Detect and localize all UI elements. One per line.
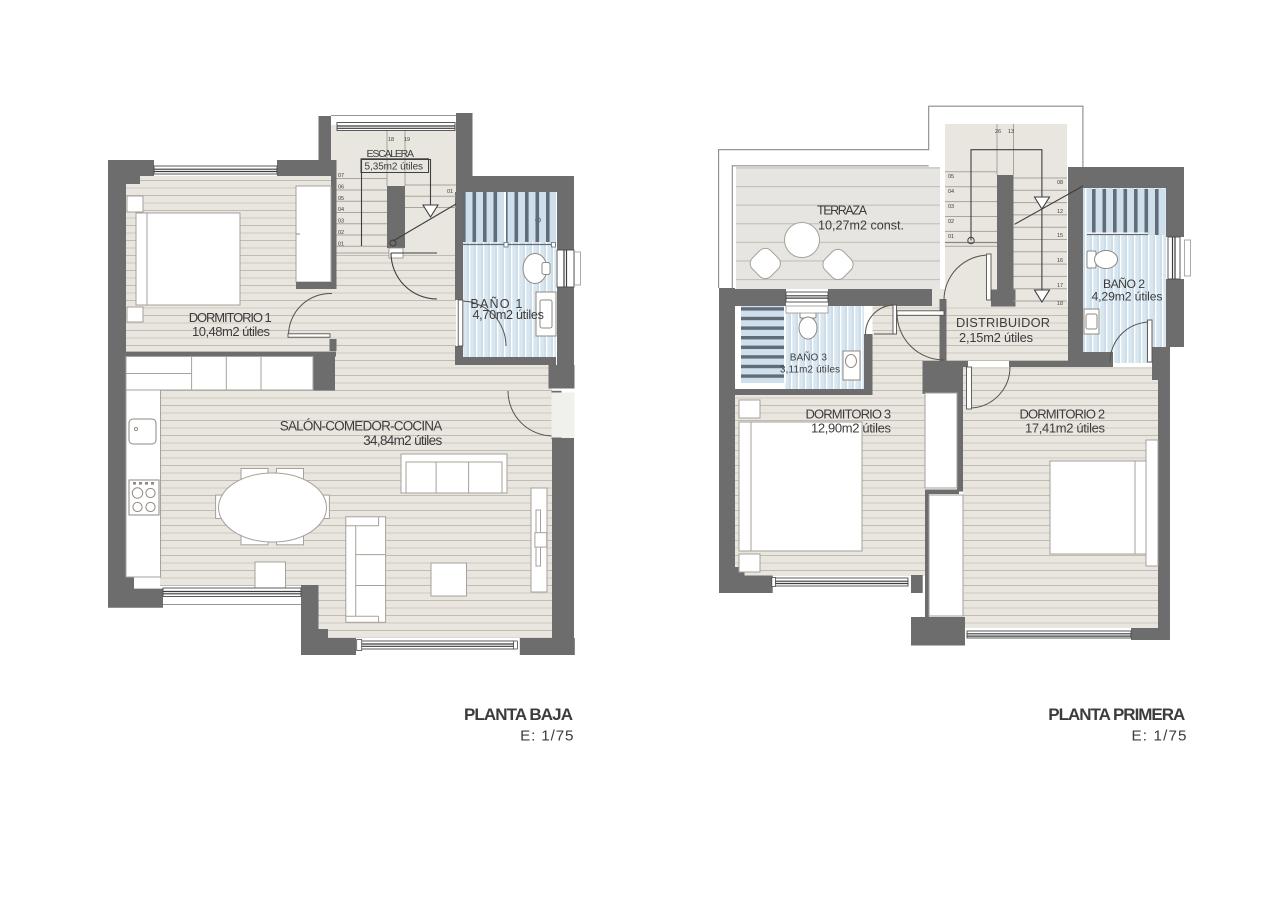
svg-text:13: 13 — [1008, 129, 1014, 135]
svg-text:10,27m2 const.: 10,27m2 const. — [818, 219, 904, 233]
svg-text:01: 01 — [948, 234, 954, 240]
svg-text:18: 18 — [1057, 301, 1063, 307]
svg-text:16: 16 — [1057, 258, 1063, 264]
svg-text:34,84m2 útiles: 34,84m2 útiles — [363, 433, 442, 448]
svg-text:18: 18 — [388, 137, 394, 143]
svg-text:4,70m2 útiles: 4,70m2 útiles — [472, 308, 544, 322]
svg-text:04: 04 — [338, 207, 344, 213]
svg-text:08: 08 — [1057, 180, 1063, 186]
svg-text:E: 1/75: E: 1/75 — [520, 728, 573, 745]
svg-text:12,90m2 útiles: 12,90m2 útiles — [811, 420, 892, 435]
svg-text:ESCALERA: ESCALERA — [367, 148, 415, 160]
svg-text:15: 15 — [1057, 233, 1063, 239]
svg-text:26: 26 — [995, 129, 1001, 135]
svg-text:5,35m2 útiles: 5,35m2 útiles — [365, 162, 424, 173]
svg-text:4,29m2 útiles: 4,29m2 útiles — [1092, 290, 1163, 304]
svg-text:BAÑO 3: BAÑO 3 — [790, 353, 828, 364]
svg-text:02: 02 — [338, 230, 344, 236]
svg-text:10,48m2 útiles: 10,48m2 útiles — [192, 324, 271, 339]
svg-text:17: 17 — [1057, 283, 1063, 289]
svg-text:2,15m2 útiles: 2,15m2 útiles — [959, 330, 1033, 345]
svg-text:DISTRIBUIDOR: DISTRIBUIDOR — [956, 315, 1050, 330]
svg-text:DORMITORIO 1: DORMITORIO 1 — [189, 310, 272, 325]
svg-text:SALÓN-COMEDOR-COCINA: SALÓN-COMEDOR-COCINA — [280, 419, 443, 434]
svg-text:03: 03 — [338, 219, 344, 225]
svg-text:3,11m2 útiles: 3,11m2 útiles — [780, 365, 840, 376]
svg-text:19: 19 — [404, 137, 410, 143]
svg-text:07: 07 — [338, 173, 344, 179]
svg-text:DORMITORIO 3: DORMITORIO 3 — [806, 406, 892, 421]
svg-text:PLANTA PRIMERA: PLANTA PRIMERA — [1048, 705, 1185, 724]
svg-text:DORMITORIO 2: DORMITORIO 2 — [1020, 406, 1106, 421]
svg-text:06: 06 — [338, 185, 344, 191]
svg-text:E: 1/75: E: 1/75 — [1132, 728, 1187, 745]
svg-text:05: 05 — [948, 174, 954, 180]
svg-text:04: 04 — [948, 189, 954, 195]
svg-text:12: 12 — [1057, 209, 1063, 215]
svg-text:05: 05 — [338, 196, 344, 202]
svg-text:17,41m2 útiles: 17,41m2 útiles — [1025, 420, 1106, 435]
svg-text:PLANTA BAJA: PLANTA BAJA — [464, 705, 573, 724]
svg-text:03: 03 — [948, 204, 954, 210]
svg-text:01: 01 — [338, 242, 344, 248]
svg-text:01: 01 — [447, 189, 453, 195]
svg-text:02: 02 — [948, 219, 954, 225]
svg-text:TERRAZA: TERRAZA — [817, 204, 868, 218]
